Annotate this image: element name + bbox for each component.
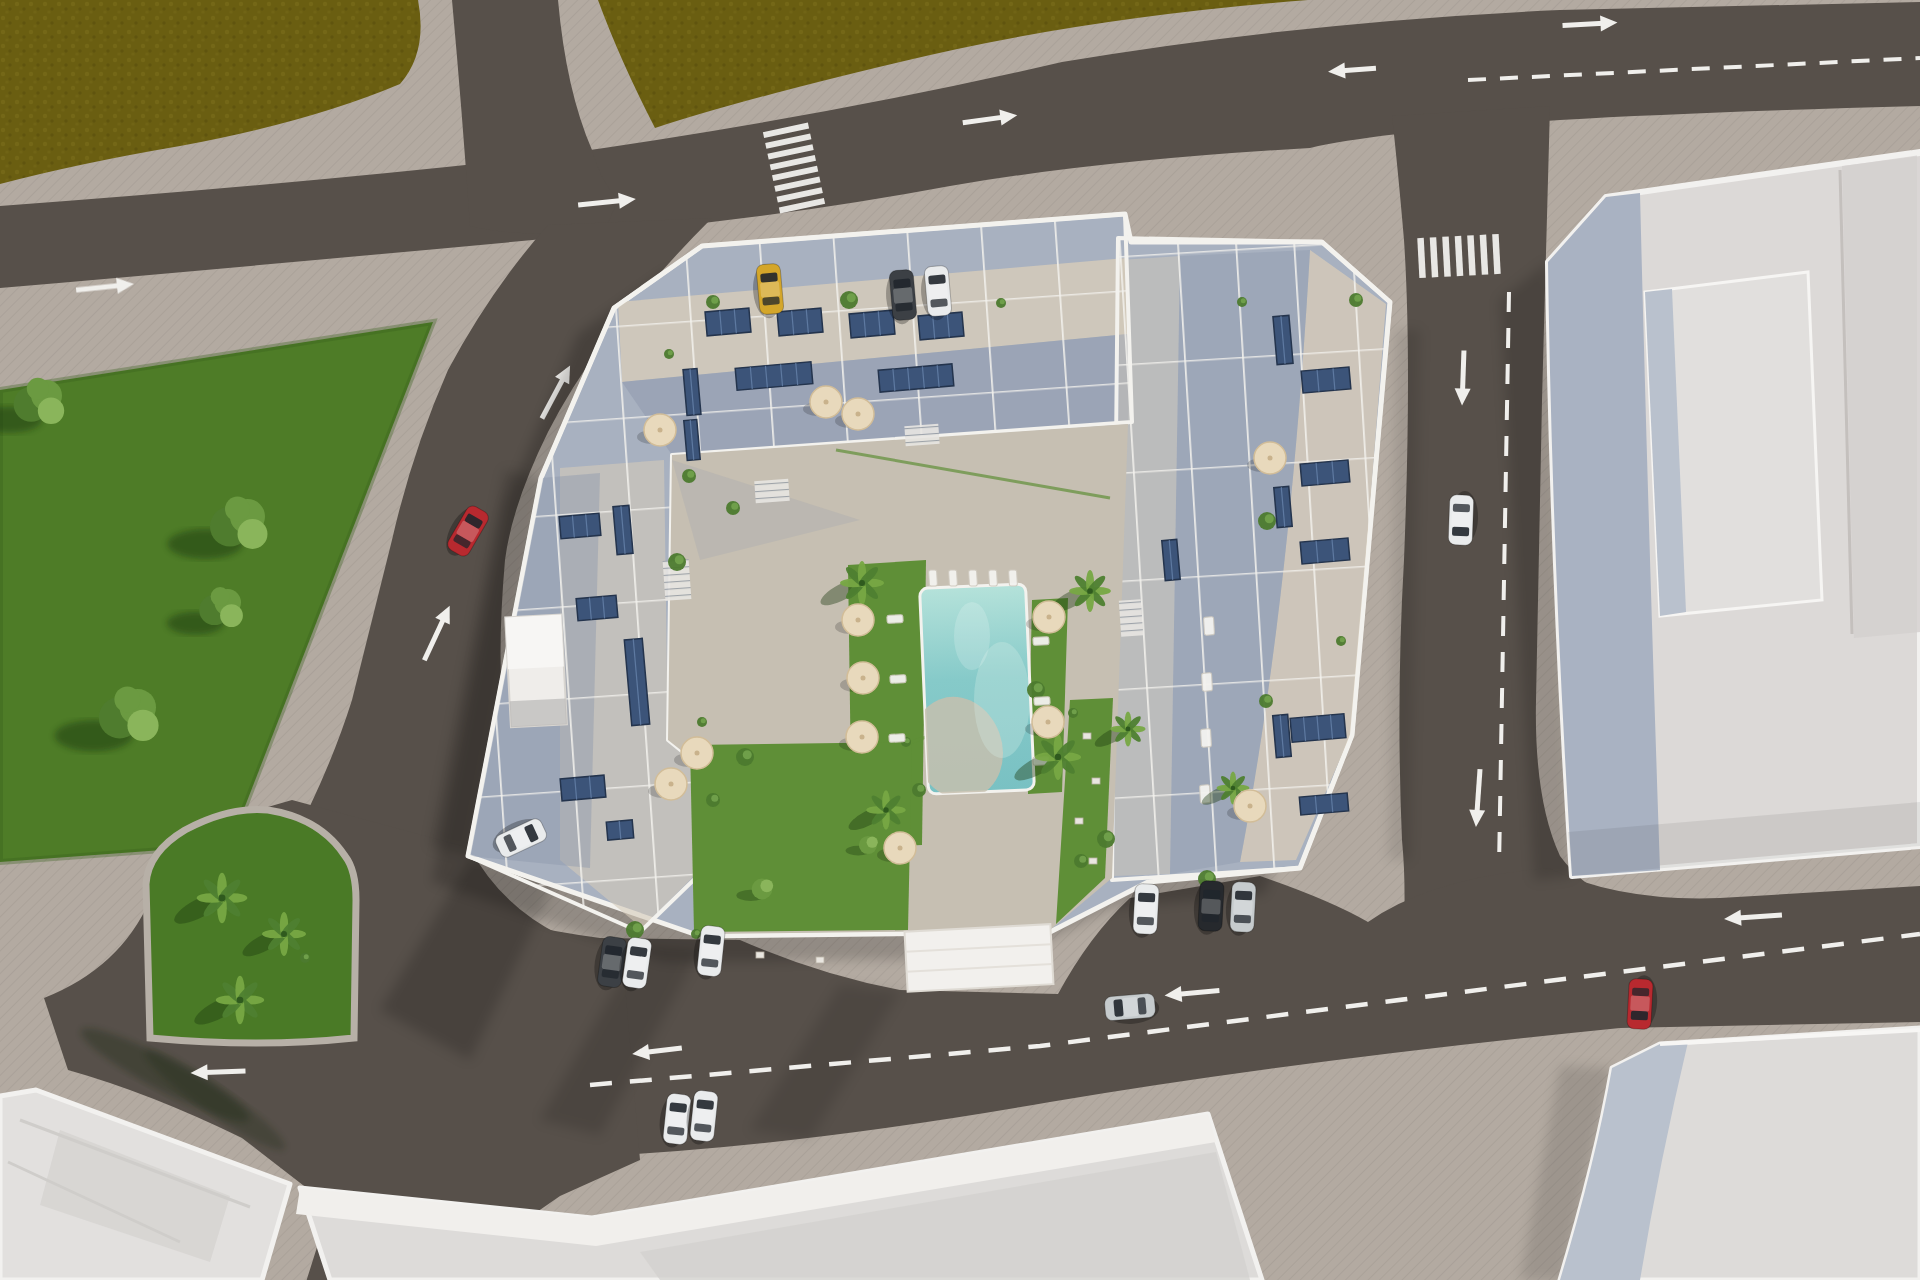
- aerial-render-scene: [0, 0, 1920, 1280]
- scene-canvas: [0, 0, 1920, 1280]
